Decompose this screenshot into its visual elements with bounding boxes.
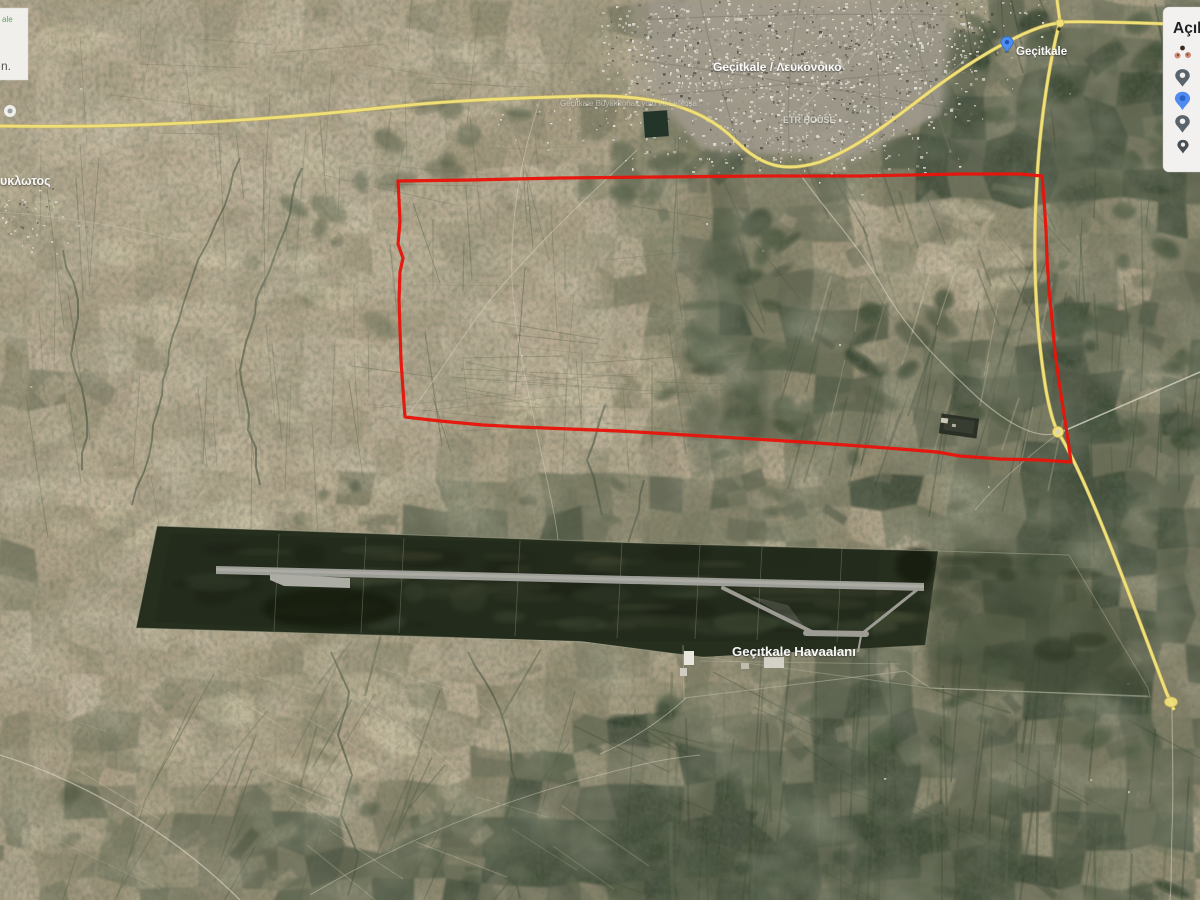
svg-text:ETR HOUSE: ETR HOUSE bbox=[783, 115, 836, 125]
svg-text:Geçitkale: Geçitkale bbox=[1016, 46, 1067, 58]
svg-text:n.: n. bbox=[1, 59, 11, 73]
svg-text:ale: ale bbox=[2, 15, 13, 24]
svg-text:Geçitkale Büyükkonak yolu ve L: Geçitkale Büyükkonak yolu ve Lefkoşa bbox=[560, 99, 698, 108]
svg-text:Açıl: Açıl bbox=[1173, 20, 1200, 37]
svg-text:Geçitkale / Λευκόνοικο: Geçitkale / Λευκόνοικο bbox=[713, 60, 842, 74]
svg-text:υκλωτος: υκλωτος bbox=[0, 174, 51, 188]
svg-text:Geçıtkale Havaalanı: Geçıtkale Havaalanı bbox=[732, 644, 856, 659]
